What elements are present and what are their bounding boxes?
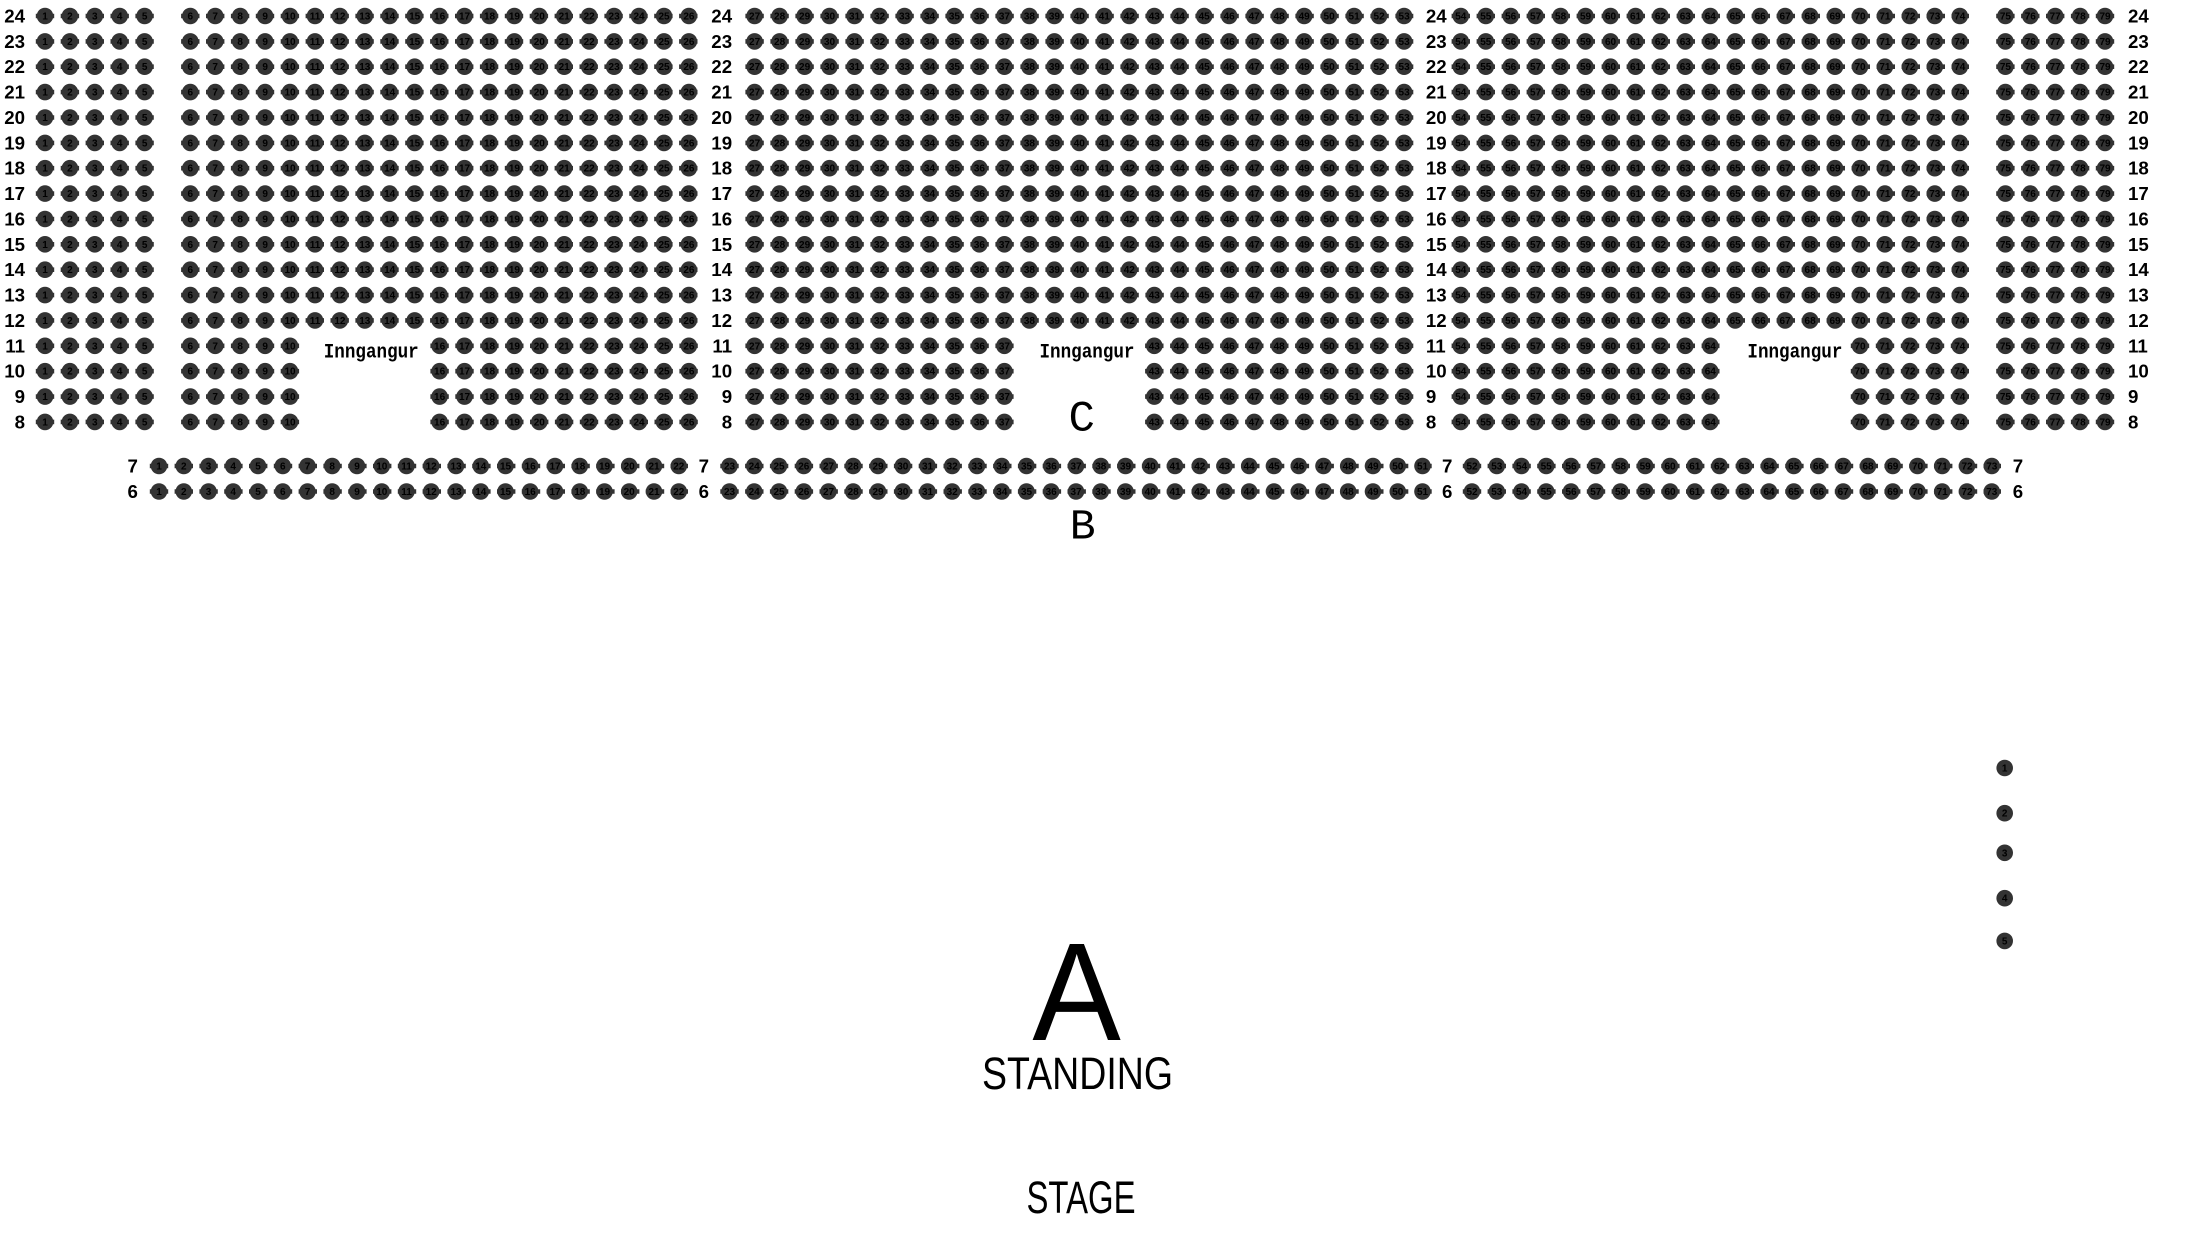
svg-text:18: 18 (2128, 158, 2149, 179)
svg-text:10: 10 (2128, 361, 2149, 382)
svg-text:13: 13 (711, 285, 732, 306)
svg-text:18: 18 (1426, 158, 1447, 179)
svg-text:12: 12 (4, 310, 25, 331)
svg-text:11: 11 (5, 335, 25, 356)
svg-text:24: 24 (1426, 6, 1447, 27)
svg-text:16: 16 (1426, 209, 1447, 230)
svg-text:20: 20 (1426, 107, 1447, 128)
svg-text:20: 20 (2128, 107, 2149, 128)
svg-text:C: C (1068, 394, 1094, 444)
svg-text:20: 20 (4, 107, 25, 128)
svg-text:22: 22 (4, 56, 25, 77)
svg-text:6: 6 (127, 481, 137, 502)
svg-text:9: 9 (2128, 386, 2138, 407)
svg-text:13: 13 (1426, 285, 1447, 306)
svg-text:17: 17 (2128, 183, 2149, 204)
svg-text:11: 11 (1426, 335, 1446, 356)
svg-text:11: 11 (712, 335, 732, 356)
svg-text:14: 14 (4, 259, 25, 280)
svg-text:15: 15 (711, 234, 732, 255)
svg-text:10: 10 (4, 361, 25, 382)
svg-text:2: 2 (2002, 809, 2008, 820)
svg-text:STANDING: STANDING (982, 1048, 1173, 1099)
svg-text:11: 11 (2128, 335, 2148, 356)
svg-text:19: 19 (711, 132, 732, 153)
svg-text:123456789101112131415161718192: 1234567891011121314151617181920212223242… (156, 487, 1998, 498)
svg-text:7: 7 (127, 456, 137, 477)
svg-text:19: 19 (1426, 132, 1447, 153)
svg-text:24: 24 (4, 6, 25, 27)
svg-text:18: 18 (4, 158, 25, 179)
svg-text:19: 19 (4, 132, 25, 153)
svg-text:21: 21 (4, 82, 25, 103)
svg-text:21: 21 (711, 82, 732, 103)
svg-text:21: 21 (2128, 82, 2149, 103)
svg-text:13: 13 (4, 285, 25, 306)
svg-text:14: 14 (711, 259, 732, 280)
svg-text:24: 24 (2128, 6, 2149, 27)
svg-text:8: 8 (2128, 411, 2138, 432)
svg-text:12: 12 (2128, 310, 2149, 331)
svg-text:17: 17 (1426, 183, 1447, 204)
svg-text:23: 23 (1426, 31, 1447, 52)
svg-text:14: 14 (2128, 259, 2149, 280)
svg-text:6: 6 (2013, 481, 2023, 502)
svg-text:23: 23 (711, 31, 732, 52)
svg-text:B: B (1070, 503, 1096, 552)
svg-text:15: 15 (4, 234, 25, 255)
svg-text:A: A (1032, 914, 1121, 1070)
svg-text:22: 22 (2128, 56, 2149, 77)
svg-text:9: 9 (722, 386, 732, 407)
svg-text:7: 7 (699, 456, 709, 477)
svg-text:123456789101112131415161718192: 1234567891011121314151617181920212223242… (156, 462, 1998, 473)
svg-text:7: 7 (2013, 456, 2023, 477)
svg-text:6: 6 (1442, 481, 1452, 502)
svg-text:7: 7 (1442, 456, 1452, 477)
svg-text:16: 16 (711, 209, 732, 230)
svg-text:22: 22 (1426, 56, 1447, 77)
svg-text:18: 18 (711, 158, 732, 179)
svg-text:STAGE: STAGE (1027, 1172, 1136, 1223)
svg-text:20: 20 (711, 107, 732, 128)
svg-text:19: 19 (2128, 132, 2149, 153)
svg-text:5: 5 (2002, 936, 2008, 947)
svg-text:1: 1 (2002, 764, 2008, 775)
svg-text:9: 9 (1426, 386, 1436, 407)
svg-text:23: 23 (4, 31, 25, 52)
svg-text:22: 22 (711, 56, 732, 77)
svg-text:10: 10 (711, 361, 732, 382)
svg-text:15: 15 (1426, 234, 1447, 255)
svg-text:9: 9 (15, 386, 25, 407)
svg-text:Inngangur: Inngangur (324, 342, 419, 365)
svg-text:6: 6 (699, 481, 709, 502)
svg-text:15: 15 (2128, 234, 2149, 255)
svg-text:4: 4 (2002, 894, 2008, 905)
svg-text:12: 12 (1426, 310, 1447, 331)
svg-text:12: 12 (711, 310, 732, 331)
svg-text:8: 8 (722, 411, 732, 432)
svg-text:Inngangur: Inngangur (1040, 342, 1135, 365)
svg-text:16: 16 (2128, 209, 2149, 230)
svg-text:13: 13 (2128, 285, 2149, 306)
svg-text:21: 21 (1426, 82, 1447, 103)
svg-text:16: 16 (4, 209, 25, 230)
svg-text:17: 17 (711, 183, 732, 204)
svg-text:8: 8 (15, 411, 25, 432)
svg-text:24: 24 (711, 6, 732, 27)
svg-text:17: 17 (4, 183, 25, 204)
svg-text:23: 23 (2128, 31, 2149, 52)
svg-text:Inngangur: Inngangur (1747, 342, 1842, 365)
svg-text:3: 3 (2002, 848, 2008, 859)
svg-text:14: 14 (1426, 259, 1447, 280)
svg-text:10: 10 (1426, 361, 1447, 382)
svg-text:8: 8 (1426, 411, 1436, 432)
